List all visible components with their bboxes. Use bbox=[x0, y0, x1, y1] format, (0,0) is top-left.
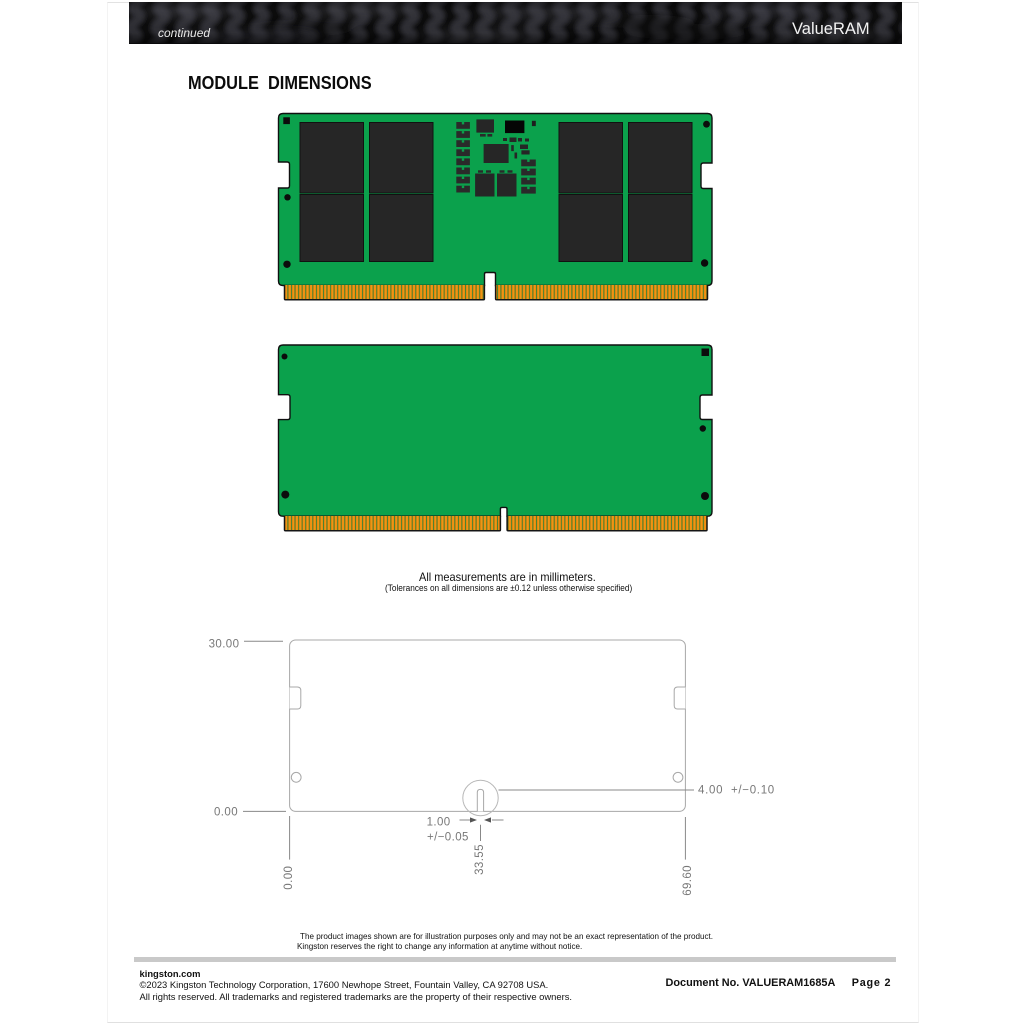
svg-text:4.00 +/−0.10: 4.00 +/−0.10 bbox=[698, 785, 775, 797]
svg-text:30.00: 30.00 bbox=[209, 639, 240, 651]
svg-text:0.00: 0.00 bbox=[214, 807, 238, 819]
svg-text:0.00: 0.00 bbox=[283, 866, 295, 890]
svg-text:1.00: 1.00 bbox=[427, 817, 451, 829]
svg-text:33.55: 33.55 bbox=[474, 844, 486, 875]
svg-text:+/−0.05: +/−0.05 bbox=[427, 832, 469, 844]
svg-text:69.60: 69.60 bbox=[682, 865, 694, 896]
